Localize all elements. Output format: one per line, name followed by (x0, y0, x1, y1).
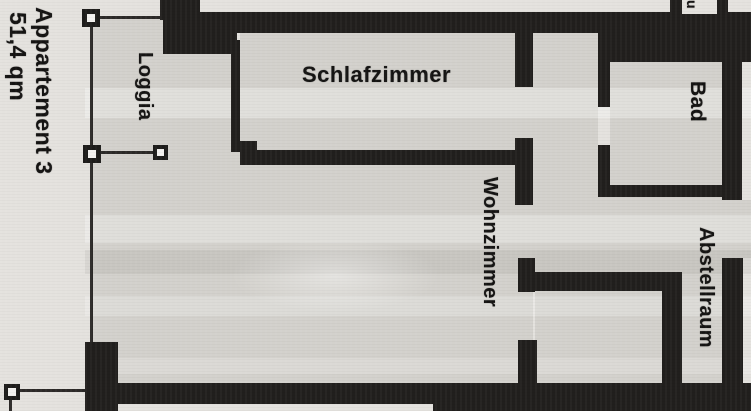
wall-schlafzimmer-right (515, 12, 533, 87)
room-label-schlafzimmer: Schlafzimmer (302, 62, 451, 88)
wall-bad-left-upper (598, 62, 610, 107)
wall-hall-bottom (533, 272, 682, 291)
room-label-bad: Bad (685, 81, 709, 122)
wall-top-left-chunk (163, 12, 237, 54)
railing-post-top-left (82, 9, 100, 27)
wall-door-jamb-upper (515, 138, 533, 205)
wohnzimmer-floor (93, 152, 533, 384)
wall-bad-bottom (598, 185, 723, 197)
wall-schlafzimmer-bottom-jamb (240, 141, 257, 165)
right-edge-opening (722, 200, 751, 258)
room-label-abstellraum: Abstellraum (694, 227, 717, 348)
cutoff-letter-fragment: u (684, 0, 700, 9)
railing-post-mid-left (83, 145, 101, 163)
wall-bottom-fill (433, 404, 751, 411)
railing-post-mid-right (153, 145, 168, 160)
wall-corner-block (85, 342, 118, 411)
hall-floor-vertical (533, 32, 598, 197)
wall-schlafzimmer-bottom (240, 150, 527, 165)
apartment-area: 51,4 qm (4, 12, 31, 101)
lower-balcony-railing-h (16, 389, 86, 392)
wall-nook-right (662, 272, 682, 385)
lower-balcony-railing-v (9, 399, 12, 411)
wall-bottom-stub (518, 340, 537, 384)
storage-nook-floor (535, 291, 662, 383)
floor-plan: Appartement 3 51,4 qm Loggia Schlafzimme… (0, 0, 751, 411)
room-label-loggia: Loggia (133, 52, 156, 121)
railing-post-bottom-left (4, 384, 20, 400)
room-label-wohnzimmer: Wohnzimmer (478, 177, 501, 307)
loggia-railing-top (90, 16, 165, 19)
wall-right-lower (722, 258, 743, 385)
wall-bottom-band (85, 383, 751, 404)
wall-schlafzimmer-left (231, 40, 240, 152)
schlafzimmer-floor (240, 32, 533, 152)
apartment-title: Appartement 3 (30, 7, 57, 175)
wall-bad-right (722, 62, 742, 200)
loggia-railing-left (90, 16, 93, 342)
